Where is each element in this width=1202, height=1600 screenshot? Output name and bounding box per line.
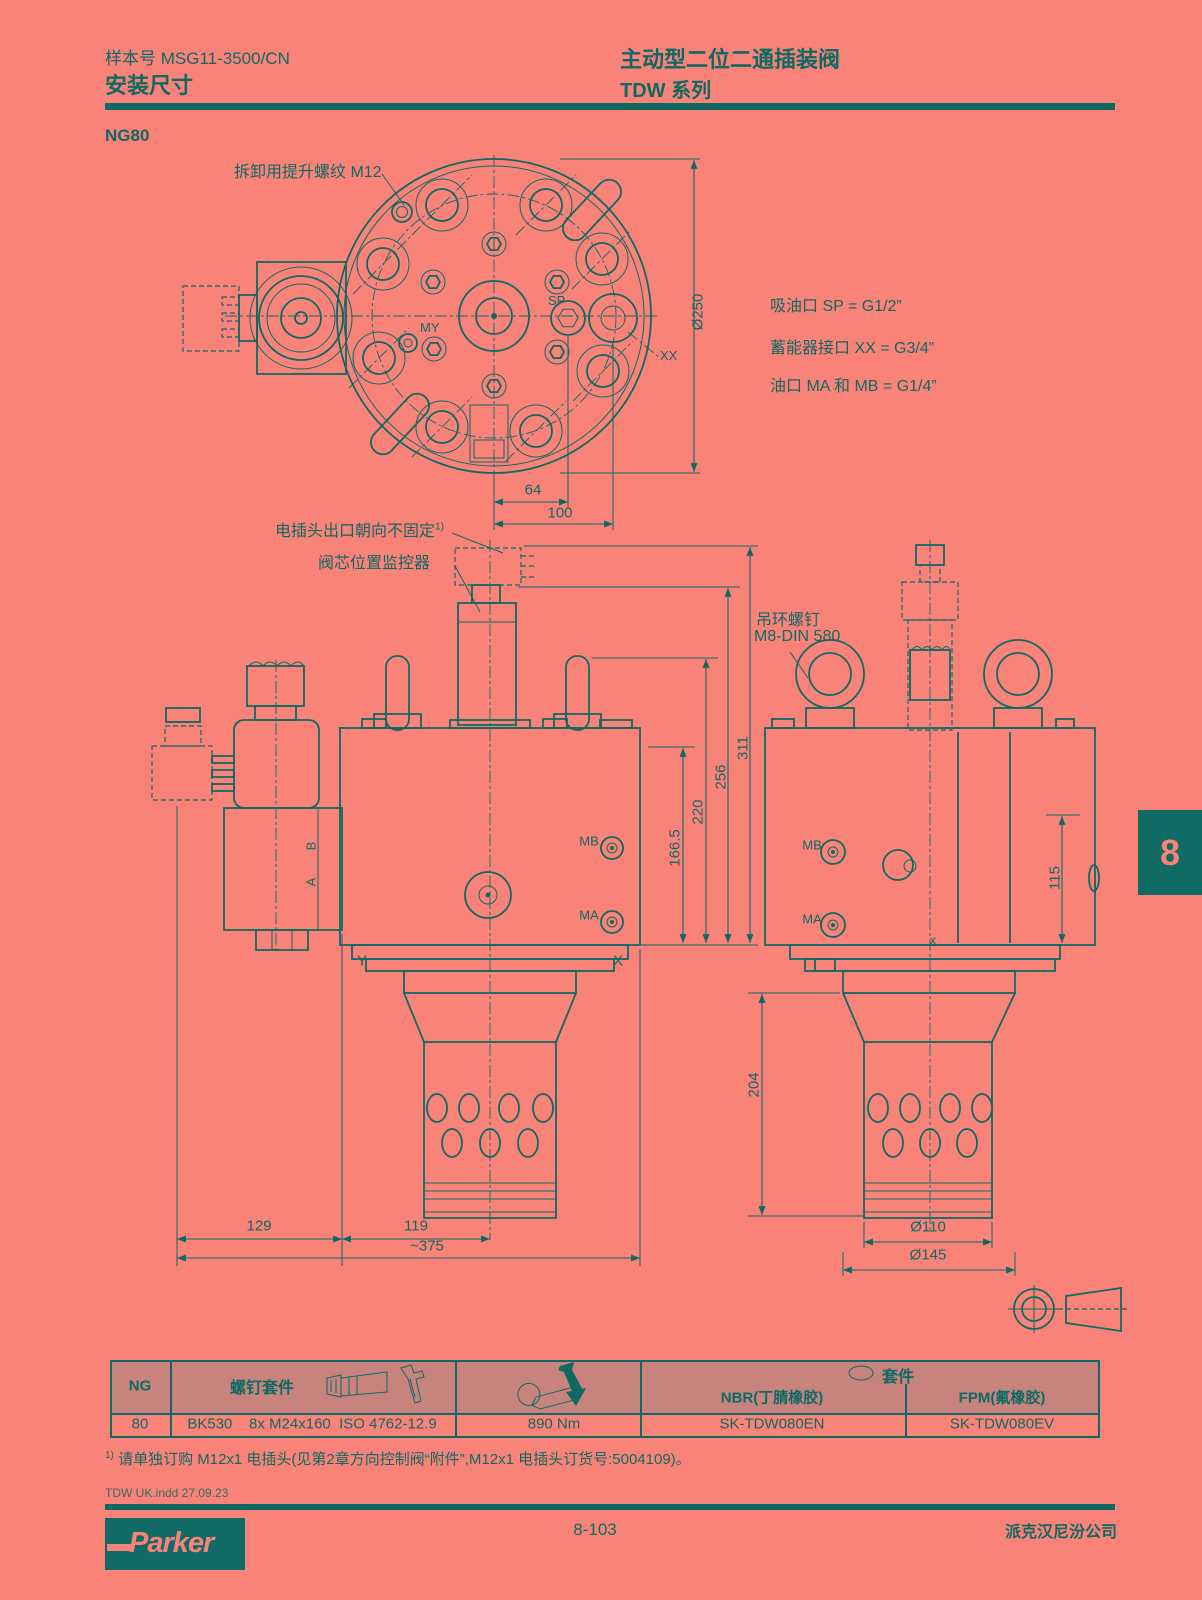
port-label-mb-side: MB [802, 838, 822, 853]
table-cell-bolt-kit: BK530 8x M24x160 ISO 4762-12.9 [187, 1416, 436, 1433]
table-cell-torque: 890 Nm [528, 1416, 581, 1433]
dim-129: 129 [246, 1218, 271, 1235]
company-name: 派克汉尼汾公司 [1005, 1518, 1117, 1542]
port-label-xx: XX [660, 348, 677, 363]
port-label-mb-front: MB [579, 834, 599, 849]
dim-64: 64 [525, 482, 542, 499]
dim-256: 256 [713, 764, 730, 789]
size-code: NG80 [105, 126, 149, 146]
note-port-xx: 蓄能器接口 XX = G3/4” [770, 334, 934, 358]
projection-symbol-icon [995, 1275, 1135, 1340]
note-port-sp: 吸油口 SP = G1/2” [770, 292, 902, 316]
top-view-drawing [140, 145, 715, 540]
torque-wrench-icon [500, 1358, 610, 1410]
parker-logo: Parker [105, 1518, 245, 1570]
port-label-sp: SP [548, 293, 565, 308]
header-rule [105, 103, 1115, 110]
table-cell-ng: 80 [132, 1416, 149, 1433]
table-col-fpm: FPM(氟橡胶) [959, 1387, 1046, 1408]
port-label-x: X [613, 953, 623, 970]
series-title: TDW 系列 [620, 74, 711, 103]
catalog-page: 样本号 MSG11-3500/CN 安装尺寸 主动型二位二通插装阀 TDW 系列… [0, 0, 1202, 1600]
port-label-x-lower: x [930, 933, 936, 947]
front-view-drawing [95, 535, 760, 1275]
bolt-kit-icon [325, 1364, 445, 1408]
dim-115: 115 [1047, 866, 1064, 890]
table-col-ng: NG [129, 1378, 152, 1395]
dim-119: 119 [404, 1218, 428, 1235]
o-ring-icon [846, 1364, 876, 1382]
footnote: 1) 请单独订购 M12x1 电插头(见第2章方向控制阀“附件”,M12x1 电… [105, 1448, 691, 1469]
table-col-seal-kit: 套件 [882, 1363, 914, 1387]
dim-100: 100 [547, 505, 572, 522]
page-title: 安装尺寸 [105, 68, 193, 100]
dim-204: 204 [746, 1072, 763, 1097]
note-port-mamb: 油口 MA 和 MB = G1/4” [770, 372, 937, 396]
table-col-nbr: NBR(丁腈橡胶) [721, 1387, 824, 1408]
parker-logo-text: Parker [129, 1527, 213, 1560]
callout-plug-orientation: 电插头出口朝向不固定1) [275, 517, 444, 541]
doc-number: 样本号 MSG11-3500/CN [105, 44, 290, 69]
file-note: TDW UK.indd 27.09.23 [105, 1486, 228, 1500]
callout-eye-bolt-1: 吊环螺钉 [756, 606, 820, 630]
callout-eye-bolt-2: M8-DIN 580 [754, 628, 840, 646]
port-label-ma-side: MA [802, 912, 822, 927]
dim-166-5: 166.5 [667, 829, 684, 867]
table-cell-fpm: SK-TDW080EV [950, 1416, 1054, 1433]
chapter-tab: 8 [1138, 810, 1202, 895]
page-number: 8-103 [573, 1520, 616, 1540]
product-title: 主动型二位二通插装阀 [620, 42, 840, 74]
chapter-tab-number: 8 [1160, 832, 1180, 874]
port-label-ma-front: MA [579, 908, 599, 923]
dim-dia110: Ø110 [910, 1219, 946, 1236]
dim-dia145: Ø145 [910, 1247, 947, 1264]
dim-311: 311 [735, 736, 752, 760]
dim-220: 220 [690, 799, 707, 824]
port-label-my: MY [420, 320, 440, 335]
table-cell-nbr: SK-TDW080EN [719, 1416, 824, 1433]
port-label-b: B [304, 842, 319, 851]
dim-dia250: Ø250 [690, 294, 707, 331]
callout-lifting-thread: 拆卸用提升螺纹 M12 [234, 158, 382, 182]
footer-rule [105, 1504, 1115, 1510]
port-label-a: A [304, 878, 319, 887]
callout-spool-monitor: 阀芯位置监控器 [318, 549, 430, 573]
table-col-bolt-kit: 螺钉套件 [230, 1374, 294, 1398]
side-view-drawing [745, 535, 1120, 1280]
port-label-y: Y [357, 953, 367, 970]
dim-375: ~375 [410, 1238, 444, 1255]
